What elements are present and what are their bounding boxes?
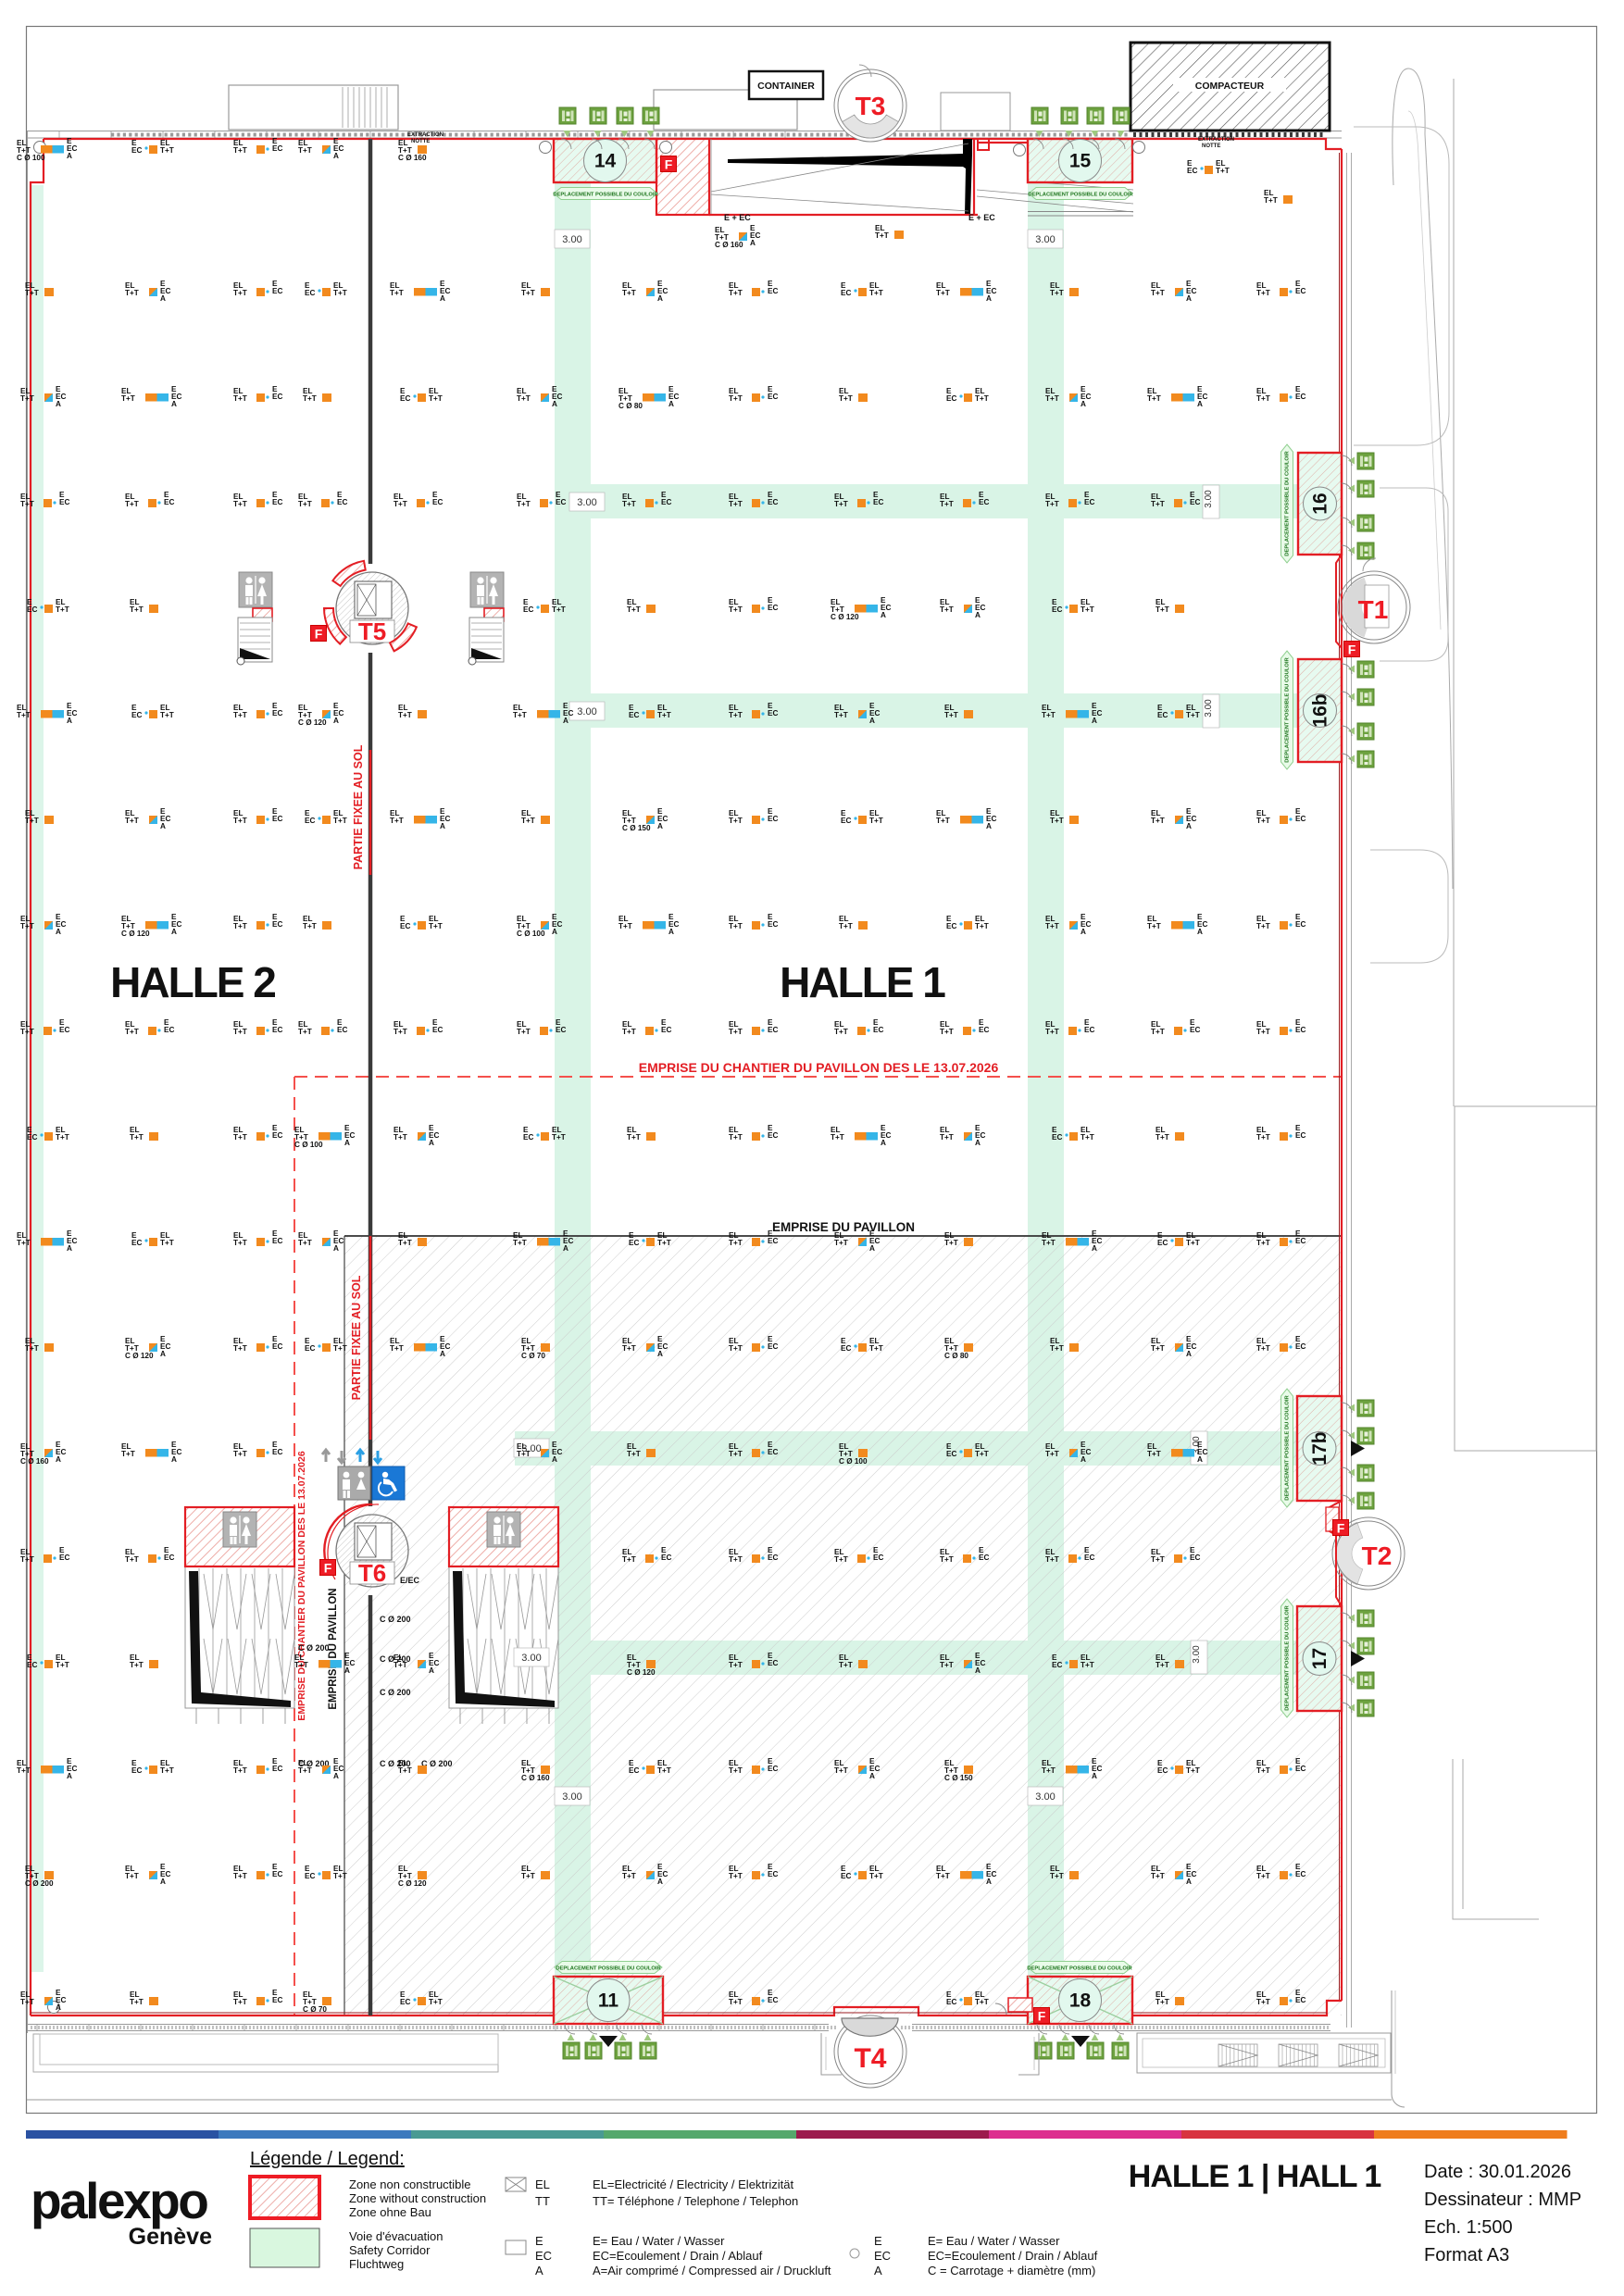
svg-text:A: A [67, 152, 72, 160]
svg-text:T+T: T+T [298, 1239, 312, 1247]
svg-text:T+T: T+T [130, 1998, 144, 2006]
svg-text:T+T: T+T [940, 1133, 954, 1142]
svg-text:A: A [67, 1772, 72, 1780]
svg-text:EC: EC [1084, 1554, 1094, 1562]
svg-text:EC: EC [1157, 1766, 1168, 1775]
svg-text:EC: EC [131, 1766, 142, 1775]
svg-text:3.00: 3.00 [1192, 1645, 1202, 1664]
svg-text:3.00: 3.00 [1035, 234, 1055, 245]
svg-text:T+T: T+T [125, 1872, 139, 1880]
svg-text:EC: EC [841, 1344, 851, 1353]
svg-text:T+T: T+T [517, 1450, 531, 1458]
svg-text:T+T: T+T [25, 1344, 39, 1353]
svg-text:T+T: T+T [513, 711, 527, 719]
svg-text:C Ø 160: C Ø 160 [398, 154, 427, 162]
svg-text:A: A [1186, 1350, 1192, 1358]
svg-text:EC: EC [979, 498, 989, 506]
svg-text:EC: EC [272, 498, 282, 506]
svg-text:T+T: T+T [552, 1133, 566, 1142]
svg-text:A: A [668, 928, 674, 936]
svg-text:EC: EC [1295, 1765, 1305, 1773]
svg-text:C Ø 120: C Ø 120 [627, 1668, 656, 1677]
svg-text:T+T: T+T [936, 1872, 950, 1880]
svg-text:15: 15 [1069, 151, 1092, 172]
svg-text:A: A [56, 400, 61, 408]
svg-text:E= Eau / Water / Wasser: E= Eau / Water / Wasser [928, 2234, 1060, 2248]
svg-text:EC: EC [661, 1554, 671, 1562]
svg-text:A: A [657, 822, 663, 830]
svg-text:EMPRISE DU CHANTIER DU PAVILLO: EMPRISE DU CHANTIER DU PAVILLON DES LE 1… [639, 1060, 999, 1075]
svg-text:A: A [344, 1139, 350, 1147]
svg-text:PARTIE FIXEE AU SOL: PARTIE FIXEE AU SOL [350, 1275, 363, 1400]
svg-text:A: A [1197, 1455, 1203, 1464]
svg-text:T+T: T+T [1050, 289, 1064, 297]
svg-text:T+T: T+T [657, 1239, 671, 1247]
svg-text:T+T: T+T [869, 1344, 883, 1353]
svg-text:EC: EC [400, 394, 410, 403]
svg-text:EC: EC [873, 498, 883, 506]
svg-text:T+T: T+T [940, 605, 954, 614]
svg-text:T+T: T+T [233, 1133, 247, 1142]
svg-text:HALLE 1: HALLE 1 [780, 958, 945, 1006]
svg-text:COMPACTEUR: COMPACTEUR [1195, 81, 1265, 92]
svg-text:palexpo: palexpo [31, 2172, 207, 2229]
svg-text:EC: EC [1295, 1870, 1305, 1878]
svg-text:T+T: T+T [729, 1998, 743, 2006]
svg-text:EC: EC [768, 1342, 778, 1351]
svg-text:E/EC: E/EC [400, 1576, 420, 1585]
svg-text:PARTIE FIXEE AU SOL: PARTIE FIXEE AU SOL [352, 744, 365, 869]
svg-text:T+T: T+T [1256, 289, 1270, 297]
svg-text:EC: EC [305, 817, 315, 825]
svg-text:T+T: T+T [729, 605, 743, 614]
svg-text:DEPLACEMENT POSSIBLE DU COULOI: DEPLACEMENT POSSIBLE DU COULOIR [1027, 1966, 1132, 1972]
svg-text:T+T: T+T [622, 1344, 636, 1353]
svg-text:T+T: T+T [125, 817, 139, 825]
svg-text:T5: T5 [358, 618, 386, 645]
svg-text:T6: T6 [358, 1559, 386, 1587]
svg-text:C Ø 150: C Ø 150 [944, 1774, 973, 1782]
svg-text:A: A [668, 400, 674, 408]
svg-text:C Ø 200: C Ø 200 [380, 1615, 411, 1624]
svg-text:C Ø 100: C Ø 100 [517, 930, 545, 938]
svg-text:T+T: T+T [839, 1661, 853, 1669]
svg-text:A: A [881, 1139, 886, 1147]
svg-text:T+T: T+T [1256, 1766, 1270, 1775]
svg-text:T+T: T+T [1256, 1133, 1270, 1142]
svg-text:T+T: T+T [160, 1239, 174, 1247]
svg-text:T+T: T+T [729, 1661, 743, 1669]
svg-text:T+T: T+T [517, 394, 531, 403]
svg-text:T+T: T+T [729, 922, 743, 930]
svg-text:EC: EC [979, 1026, 989, 1034]
svg-text:EC: EC [272, 1996, 282, 2004]
svg-text:T+T: T+T [20, 500, 34, 508]
svg-text:T+T: T+T [940, 1555, 954, 1564]
svg-text:T+T: T+T [657, 1766, 671, 1775]
svg-text:A: A [563, 717, 568, 725]
svg-text:T+T: T+T [940, 1661, 954, 1669]
svg-text:A: A [874, 2264, 882, 2277]
svg-text:3.00: 3.00 [577, 497, 596, 508]
svg-text:T+T: T+T [657, 711, 671, 719]
svg-text:T+T: T+T [20, 394, 34, 403]
svg-text:EC: EC [27, 1133, 37, 1142]
svg-text:T+T: T+T [160, 146, 174, 155]
svg-text:HALLE 1 | HALL 1: HALLE 1 | HALL 1 [1129, 2159, 1381, 2194]
svg-text:C Ø 200: C Ø 200 [298, 1643, 330, 1653]
svg-text:A: A [1081, 928, 1086, 936]
svg-text:A: A [160, 1350, 166, 1358]
svg-text:T+T: T+T [1256, 1028, 1270, 1036]
svg-text:T+T: T+T [1186, 711, 1200, 719]
svg-text:DEPLACEMENT POSSIBLE DU COULOI: DEPLACEMENT POSSIBLE DU COULOIR [1285, 1605, 1291, 1711]
svg-text:EC: EC [1052, 605, 1062, 614]
svg-text:CONTAINER: CONTAINER [757, 81, 815, 92]
svg-text:C Ø 100: C Ø 100 [294, 1141, 323, 1149]
svg-text:T+T: T+T [394, 1028, 407, 1036]
svg-text:A: A [67, 1244, 72, 1253]
svg-text:T+T: T+T [233, 146, 247, 155]
svg-text:T+T: T+T [160, 1766, 174, 1775]
svg-text:EC: EC [768, 1554, 778, 1562]
svg-text:EC: EC [661, 498, 671, 506]
svg-text:T+T: T+T [233, 817, 247, 825]
svg-text:EC: EC [768, 709, 778, 717]
svg-text:T+T: T+T [1045, 394, 1059, 403]
svg-text:A: A [657, 1878, 663, 1886]
svg-text:T+T: T+T [729, 1239, 743, 1247]
svg-text:EC: EC [1295, 1342, 1305, 1351]
svg-text:T+T: T+T [298, 1766, 312, 1775]
svg-text:EC: EC [946, 1450, 956, 1458]
svg-text:C Ø 100: C Ø 100 [17, 154, 45, 162]
svg-text:A: A [160, 1878, 166, 1886]
svg-text:T+T: T+T [1151, 1344, 1165, 1353]
svg-text:A: A [1197, 400, 1203, 408]
svg-text:T+T: T+T [1151, 1555, 1165, 1564]
svg-text:3.00: 3.00 [1204, 490, 1214, 508]
svg-text:T+T: T+T [936, 817, 950, 825]
svg-text:EC: EC [841, 817, 851, 825]
svg-text:A: A [657, 294, 663, 303]
svg-text:T+T: T+T [298, 1028, 312, 1036]
svg-text:T+T: T+T [130, 1661, 144, 1669]
svg-text:EC: EC [768, 1026, 778, 1034]
svg-text:T+T: T+T [1151, 289, 1165, 297]
svg-text:EC: EC [768, 1996, 778, 2004]
svg-text:T+T: T+T [1156, 1133, 1169, 1142]
svg-text:3.00: 3.00 [1035, 1791, 1055, 1803]
svg-text:T+T: T+T [975, 1450, 989, 1458]
svg-text:T+T: T+T [1264, 196, 1278, 205]
svg-text:T+T: T+T [1151, 817, 1165, 825]
svg-text:C Ø 80: C Ø 80 [618, 402, 643, 410]
svg-text:A: A [344, 1666, 350, 1675]
svg-text:EC: EC [131, 1239, 142, 1247]
svg-text:T+T: T+T [944, 711, 958, 719]
svg-text:T+T: T+T [517, 500, 531, 508]
svg-text:EC: EC [946, 394, 956, 403]
svg-text:T+T: T+T [233, 1872, 247, 1880]
svg-text:T+T: T+T [233, 1998, 247, 2006]
svg-text:T+T: T+T [25, 817, 39, 825]
svg-text:T+T: T+T [1081, 1133, 1094, 1142]
svg-text:EC: EC [27, 1661, 37, 1669]
svg-text:EMPRISE DU CHANTIER DU PAVILLO: EMPRISE DU CHANTIER DU PAVILLON DES LE 1… [296, 1451, 307, 1721]
svg-text:EC: EC [272, 920, 282, 929]
svg-text:T+T: T+T [1256, 1872, 1270, 1880]
svg-text:T+T: T+T [834, 1239, 848, 1247]
svg-text:C Ø 80: C Ø 80 [944, 1352, 968, 1360]
svg-text:C Ø 100: C Ø 100 [839, 1457, 868, 1466]
svg-text:T+T: T+T [121, 1450, 135, 1458]
svg-text:3.00: 3.00 [562, 1791, 581, 1803]
svg-text:EC: EC [1295, 1026, 1305, 1034]
svg-text:T+T: T+T [1147, 394, 1161, 403]
svg-text:EXTRACTION: EXTRACTION [1198, 137, 1234, 143]
svg-text:EC: EC [305, 289, 315, 297]
svg-text:A: A [429, 1666, 434, 1675]
svg-text:EC: EC [874, 2249, 891, 2263]
svg-text:A: A [657, 1350, 663, 1358]
svg-text:T+T: T+T [25, 289, 39, 297]
svg-text:EC: EC [1190, 1026, 1200, 1034]
svg-text:T+T: T+T [622, 1028, 636, 1036]
svg-text:EC: EC [1295, 287, 1305, 295]
svg-text:A: A [333, 1772, 339, 1780]
svg-text:EC: EC [164, 498, 174, 506]
svg-text:A: A [67, 717, 72, 725]
svg-text:EC: EC [337, 498, 347, 506]
svg-text:A: A [552, 400, 557, 408]
svg-text:T+T: T+T [56, 605, 69, 614]
svg-text:T+T: T+T [233, 1239, 247, 1247]
svg-text:DEPLACEMENT POSSIBLE DU COULOI: DEPLACEMENT POSSIBLE DU COULOIR [1285, 657, 1291, 763]
svg-text:T+T: T+T [20, 1028, 34, 1036]
svg-text:EC: EC [164, 1026, 174, 1034]
svg-text:T+T: T+T [729, 394, 743, 403]
svg-text:T+T: T+T [622, 500, 636, 508]
svg-text:T+T: T+T [233, 1028, 247, 1036]
svg-text:T+T: T+T [390, 289, 404, 297]
svg-text:DEPLACEMENT POSSIBLE DU COULOI: DEPLACEMENT POSSIBLE DU COULOIR [553, 193, 658, 198]
svg-text:T+T: T+T [233, 500, 247, 508]
svg-text:T+T: T+T [333, 817, 347, 825]
svg-text:C = Carrotage + diamètre (mm): C = Carrotage + diamètre (mm) [928, 2264, 1095, 2277]
svg-text:C Ø 160: C Ø 160 [20, 1457, 49, 1466]
svg-text:EC: EC [1295, 393, 1305, 401]
svg-text:EC: EC [768, 1659, 778, 1667]
svg-text:EC: EC [768, 1131, 778, 1140]
svg-text:T+T: T+T [1151, 500, 1165, 508]
svg-text:T+T: T+T [627, 605, 641, 614]
svg-text:T+T: T+T [869, 1872, 883, 1880]
svg-text:T+T: T+T [394, 500, 407, 508]
svg-text:A: A [881, 611, 886, 619]
svg-text:EC: EC [164, 1554, 174, 1562]
svg-text:T+T: T+T [729, 1133, 743, 1142]
svg-text:EC: EC [768, 815, 778, 823]
svg-text:T+T: T+T [125, 289, 139, 297]
svg-text:Dessinateur : MMP: Dessinateur : MMP [1424, 2190, 1581, 2210]
svg-text:EC: EC [1295, 815, 1305, 823]
svg-text:EC: EC [946, 1998, 956, 2006]
svg-text:T+T: T+T [940, 1028, 954, 1036]
svg-text:EC: EC [768, 393, 778, 401]
svg-text:A: A [171, 928, 177, 936]
svg-text:T+T: T+T [1156, 1661, 1169, 1669]
svg-text:T+T: T+T [398, 711, 412, 719]
svg-text:EC: EC [27, 605, 37, 614]
svg-text:EC: EC [272, 1448, 282, 1456]
svg-text:T+T: T+T [936, 289, 950, 297]
svg-text:EC: EC [1052, 1133, 1062, 1142]
svg-text:EC: EC [841, 1872, 851, 1880]
svg-text:T+T: T+T [622, 1555, 636, 1564]
svg-text:T+T: T+T [875, 231, 889, 240]
svg-text:C Ø 160: C Ø 160 [715, 241, 743, 249]
svg-text:T+T: T+T [303, 922, 317, 930]
svg-text:A: A [986, 1878, 992, 1886]
svg-text:A: A [56, 928, 61, 936]
svg-text:EC: EC [1157, 711, 1168, 719]
svg-text:Safety Corridor: Safety Corridor [349, 2243, 431, 2257]
svg-text:T+T: T+T [1045, 1555, 1059, 1564]
svg-text:EC: EC [272, 1026, 282, 1034]
svg-text:A: A [160, 294, 166, 303]
svg-text:T+T: T+T [333, 1872, 347, 1880]
svg-text:E: E [535, 2234, 543, 2248]
svg-text:T+T: T+T [233, 1344, 247, 1353]
svg-text:EC: EC [272, 1342, 282, 1351]
svg-text:A: A [160, 822, 166, 830]
svg-text:EL=Electricité / Electricity /: EL=Electricité / Electricity / Elektrizi… [593, 2177, 793, 2191]
svg-text:EC: EC [523, 1133, 533, 1142]
svg-text:T3: T3 [856, 92, 886, 120]
svg-text:T+T: T+T [839, 394, 853, 403]
svg-text:EXTRACTION: EXTRACTION [407, 132, 443, 138]
svg-text:EC: EC [272, 393, 282, 401]
svg-text:EC: EC [535, 2249, 552, 2263]
svg-text:EC: EC [841, 289, 851, 297]
svg-text:T+T: T+T [429, 394, 443, 403]
svg-text:T+T: T+T [975, 1998, 989, 2006]
svg-text:T1: T1 [1358, 595, 1389, 624]
svg-text:T+T: T+T [729, 289, 743, 297]
svg-text:EC: EC [629, 1766, 639, 1775]
svg-text:EC: EC [1190, 498, 1200, 506]
svg-text:A: A [563, 1244, 568, 1253]
svg-text:A: A [440, 822, 445, 830]
svg-text:EC: EC [59, 1554, 69, 1562]
svg-text:T+T: T+T [1042, 711, 1056, 719]
svg-text:T+T: T+T [869, 817, 883, 825]
svg-text:DEPLACEMENT POSSIBLE DU COULOI: DEPLACEMENT POSSIBLE DU COULOIR [1285, 451, 1291, 556]
svg-text:HALLE 2: HALLE 2 [110, 958, 275, 1006]
svg-text:A: A [986, 294, 992, 303]
svg-text:C Ø 160: C Ø 160 [521, 1774, 550, 1782]
svg-text:T+T: T+T [521, 817, 535, 825]
svg-text:T+T: T+T [233, 922, 247, 930]
svg-text:A: A [975, 1666, 981, 1675]
svg-text:EC: EC [523, 605, 533, 614]
svg-text:EC: EC [1187, 167, 1197, 175]
svg-text:11: 11 [598, 1990, 619, 2012]
svg-text:16: 16 [1310, 493, 1331, 514]
svg-text:A: A [975, 1139, 981, 1147]
svg-text:EL: EL [535, 2177, 550, 2191]
svg-text:T+T: T+T [20, 1998, 34, 2006]
svg-text:A: A [333, 717, 339, 725]
svg-text:A: A [1197, 928, 1203, 936]
svg-text:C Ø 120: C Ø 120 [398, 1879, 427, 1888]
svg-text:T+T: T+T [125, 500, 139, 508]
svg-text:E + EC: E + EC [968, 213, 995, 222]
svg-text:T+T: T+T [303, 394, 317, 403]
svg-text:A: A [869, 1244, 875, 1253]
svg-text:17b: 17b [1309, 1431, 1330, 1465]
svg-text:T+T: T+T [160, 711, 174, 719]
svg-text:T+T: T+T [294, 1661, 308, 1669]
svg-text:A: A [869, 1772, 875, 1780]
svg-text:T+T: T+T [56, 1661, 69, 1669]
svg-text:EC: EC [59, 498, 69, 506]
svg-text:EC: EC [272, 1870, 282, 1878]
svg-text:EC: EC [768, 1448, 778, 1456]
svg-text:E: E [874, 2234, 882, 2248]
svg-text:T+T: T+T [17, 1239, 31, 1247]
svg-text:A: A [1092, 1244, 1097, 1253]
svg-text:C Ø 70: C Ø 70 [521, 1352, 545, 1360]
svg-text:3.00: 3.00 [521, 1653, 541, 1664]
svg-text:T+T: T+T [233, 711, 247, 719]
svg-text:EC: EC [768, 1765, 778, 1773]
svg-text:C Ø 120: C Ø 120 [298, 718, 327, 727]
svg-text:A: A [552, 928, 557, 936]
svg-text:T+T: T+T [1050, 817, 1064, 825]
svg-text:T+T: T+T [233, 394, 247, 403]
svg-text:DEPLACEMENT POSSIBLE DU COULOI: DEPLACEMENT POSSIBLE DU COULOIR [1028, 193, 1133, 198]
svg-text:EC: EC [1295, 1996, 1305, 2004]
svg-text:EC: EC [1157, 1239, 1168, 1247]
svg-text:EC: EC [305, 1344, 315, 1353]
svg-text:T+T: T+T [834, 1766, 848, 1775]
svg-text:A: A [429, 1139, 434, 1147]
svg-text:T+T: T+T [1216, 167, 1230, 175]
svg-text:EC: EC [1190, 1554, 1200, 1562]
svg-text:T+T: T+T [834, 1028, 848, 1036]
svg-text:A: A [552, 1455, 557, 1464]
svg-text:EC: EC [661, 1026, 671, 1034]
svg-text:A=Air comprimé / Compressed ai: A=Air comprimé / Compressed air / Druckl… [593, 2264, 831, 2277]
svg-text:C Ø 120: C Ø 120 [121, 930, 150, 938]
svg-text:EC: EC [873, 1554, 883, 1562]
svg-text:T+T: T+T [552, 605, 566, 614]
svg-text:EC: EC [1084, 498, 1094, 506]
svg-text:TT: TT [535, 2194, 550, 2208]
svg-text:T+T: T+T [125, 1028, 139, 1036]
svg-text:18: 18 [1069, 1990, 1092, 2012]
svg-text:T+T: T+T [729, 711, 743, 719]
svg-text:T+T: T+T [20, 1555, 34, 1564]
svg-text:C Ø 200: C Ø 200 [380, 1688, 411, 1697]
svg-text:T+T: T+T [729, 1766, 743, 1775]
svg-text:T+T: T+T [729, 500, 743, 508]
svg-text:EC: EC [432, 1026, 443, 1034]
svg-text:17: 17 [1309, 1648, 1330, 1669]
svg-text:T+T: T+T [940, 500, 954, 508]
